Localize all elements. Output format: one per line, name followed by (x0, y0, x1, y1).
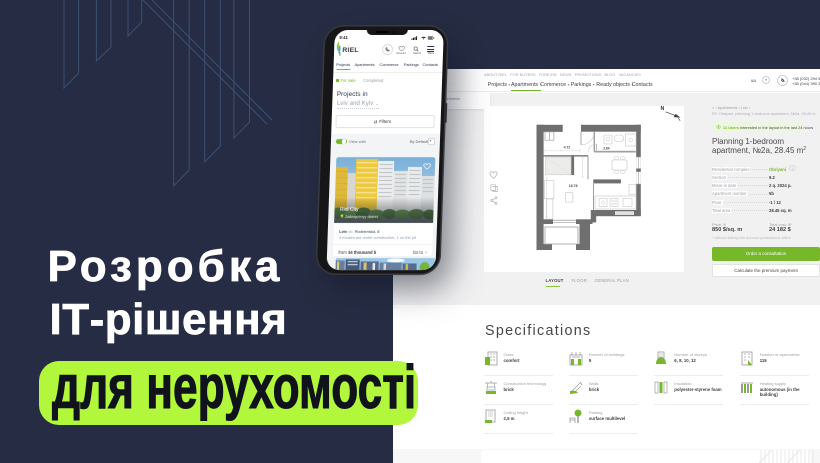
svg-text:4.72: 4.72 (564, 145, 571, 149)
svg-text:2.84: 2.84 (603, 147, 610, 151)
svg-text:16.76: 16.76 (569, 184, 578, 188)
